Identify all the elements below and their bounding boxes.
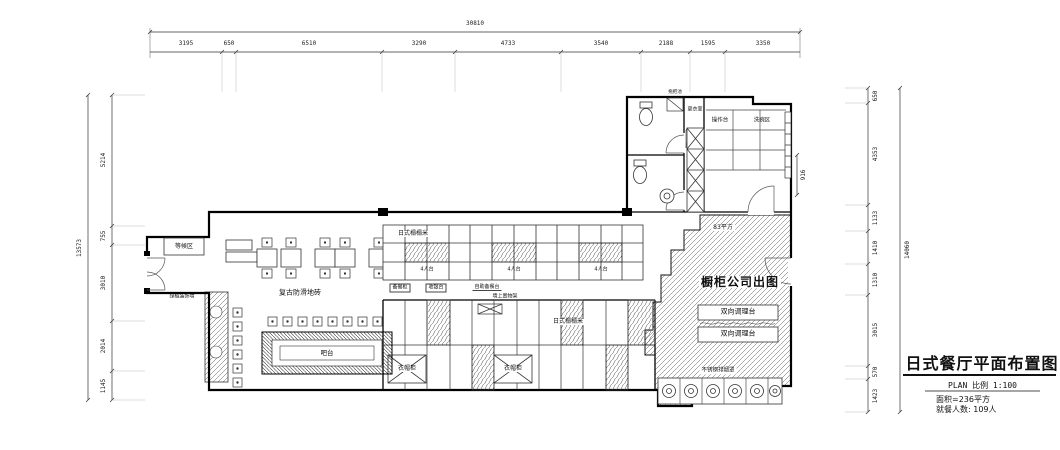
dim-right-seg: 3015 — [873, 323, 879, 337]
sink-icon — [660, 189, 674, 203]
drawing-title: 日式餐厅平面布置图 — [904, 350, 1060, 374]
dim-top-seg: 2188 — [659, 41, 673, 47]
dim-left-total: 13573 — [77, 239, 83, 257]
cook-line — [658, 378, 782, 404]
dim-right-seg: 570 — [873, 367, 879, 378]
toilet-icon — [634, 102, 653, 184]
dim-top-seg: 3195 — [179, 41, 193, 47]
dim-top-seg: 6510 — [302, 41, 316, 47]
dim-top-seg: 3540 — [594, 41, 608, 47]
seat4-label: 4人台 — [507, 268, 520, 273]
cashier-label: 收银台 — [425, 284, 446, 293]
mop-sink-box — [667, 98, 683, 111]
dim-left-seg: 2014 — [101, 339, 107, 353]
wardrobe-label: 衣帽柜 — [502, 366, 524, 372]
dim-right-seg: 650 — [873, 91, 879, 102]
waiting-area-label: 等候区 — [175, 244, 193, 250]
dim-left-seg: 3010 — [101, 276, 107, 290]
dim-left-seg: 5214 — [101, 153, 107, 167]
wall-shelf-label: 墙上置物架 — [492, 295, 517, 300]
service-counter-label: 自助备餐台 — [472, 285, 501, 291]
drawing-diners: 就餐人数: 109人 — [936, 404, 997, 415]
seat4-label: 4人台 — [594, 268, 607, 273]
prep-counter-label: 双向调理台 — [721, 331, 756, 338]
dishwash-label: 洗碗区 — [754, 118, 771, 124]
dim-right-seg: 1310 — [873, 273, 879, 287]
dim-left-seg: 1145 — [101, 379, 107, 393]
storage-shelf-unit — [687, 128, 704, 212]
floor-plan-canvas: 30810 3195 650 6510 3290 4733 3540 2188 … — [0, 0, 1060, 450]
dim-top-seg: 3350 — [756, 41, 770, 47]
hood-label: 不锈钢排烟罩 — [699, 368, 736, 374]
dim-right-seg: 1410 — [873, 241, 879, 255]
seat4-label: 4人台 — [420, 268, 433, 273]
tatami-label-top: 日式榻榻米 — [396, 231, 430, 237]
dim-right-total: 14060 — [905, 241, 911, 259]
dim-right-seg: 4353 — [873, 147, 879, 161]
wall-shelf-box — [478, 304, 502, 314]
mop-sink-label: 拖把池 — [668, 91, 682, 96]
wardrobe-label: 衣帽柜 — [396, 366, 418, 372]
changing-room-label: 更衣室 — [687, 108, 702, 113]
tatami-label-lower: 日式榻榻米 — [551, 319, 585, 325]
floor-plan-drawing — [0, 0, 1060, 450]
floor-finish-label: 复古防滑地砖 — [279, 290, 321, 297]
prep-cabinet-label: 备餐柜 — [389, 284, 410, 293]
green-wall-label: 绿植装饰墙 — [169, 295, 194, 300]
drawing-scale: PLAN 比例 1:100 — [925, 380, 1040, 391]
worktable-label: 操作台 — [712, 118, 729, 124]
prep-counter-label: 双向调理台 — [721, 309, 756, 316]
dim-top-total: 30810 — [466, 21, 484, 27]
dim-top-seg: 4733 — [501, 41, 515, 47]
dim-right-seg: 1133 — [873, 211, 879, 225]
dim-right-seg: 1423 — [873, 389, 879, 403]
waiting-room-box — [164, 238, 257, 262]
dim-top-seg: 650 — [224, 41, 235, 47]
window — [785, 112, 791, 178]
dim-door: 916 — [801, 170, 807, 181]
dim-left-seg: 755 — [101, 231, 107, 242]
dim-top-seg: 1595 — [701, 41, 715, 47]
dim-top-seg: 3290 — [412, 41, 426, 47]
bar-label: 吧台 — [321, 350, 334, 357]
kitchen-area-label: 83平方 — [711, 225, 735, 231]
kitchen-vendor-note: 橱柜公司出图 — [699, 276, 781, 288]
